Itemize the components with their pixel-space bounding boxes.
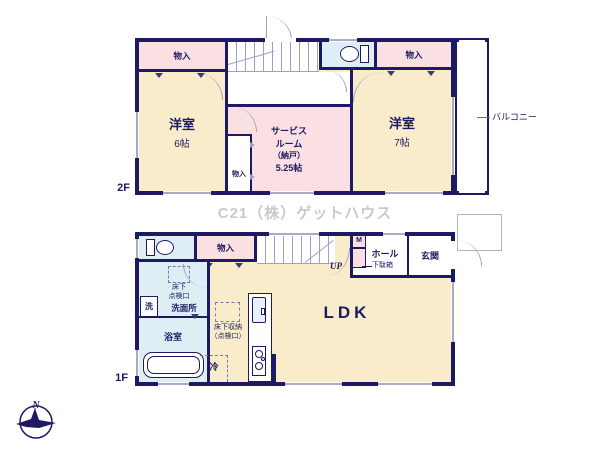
- balcony-corner: [485, 38, 489, 42]
- floor1-closet-label: 物入: [217, 242, 234, 254]
- fridge-label: 冷: [200, 362, 228, 373]
- toilet-tank-icon: [360, 45, 369, 63]
- window: [163, 191, 211, 195]
- floor2-closet-left: 物入: [139, 42, 228, 72]
- bathtub-inner: [147, 356, 200, 374]
- floor2-bedroom-west-size: 6帖: [174, 135, 190, 150]
- balcony-corner: [485, 191, 489, 195]
- window: [383, 232, 405, 236]
- window: [135, 112, 139, 158]
- window: [135, 239, 139, 258]
- underfloor-storage-line2: （点検口）: [207, 333, 249, 342]
- ldk-label: LDK: [305, 302, 389, 323]
- burner-icon: [255, 362, 263, 370]
- floor1-stairs: [257, 236, 335, 264]
- window: [269, 232, 319, 236]
- floor2-closet-small-label: 物入: [232, 169, 246, 179]
- window: [285, 382, 342, 386]
- floor2-bedroom-east-size: 7帖: [394, 134, 410, 149]
- faucet-icon: [261, 308, 265, 315]
- floor1-plan: 物入 UP M ホール 下駄箱 玄関 床下 点検口: [135, 232, 455, 386]
- floor2-closet-right: 物入: [377, 42, 451, 70]
- sliding-door-mark: [235, 263, 243, 268]
- floor2-bedroom-west-name: 洋室: [169, 114, 195, 133]
- floorplan-canvas: C21（株）ゲットハウス 2F 物入 DN 物入 洋室 6帖: [0, 0, 600, 450]
- stair-top-door-arc: [266, 16, 292, 40]
- front-door-opening: [451, 241, 455, 269]
- window: [135, 350, 139, 376]
- folding-door-mark: [250, 174, 255, 180]
- underfloor-storage-outline: [215, 302, 240, 322]
- service-room-line1: サービス: [271, 124, 307, 137]
- burner-icon: [261, 357, 265, 361]
- underfloor-storage-label: 床下収納 （点検口）: [207, 324, 249, 342]
- shoe-cabinet-leader: [362, 266, 372, 267]
- balcony-corner: [455, 38, 459, 42]
- toilet-bowl-icon: [156, 240, 174, 255]
- meter-box-divider: [353, 247, 365, 249]
- window: [158, 382, 189, 386]
- underfloor-storage-line1: 床下収納: [207, 324, 249, 333]
- floor2-label: 2F: [102, 182, 130, 196]
- window: [378, 382, 432, 386]
- bathtub-icon: [143, 352, 204, 378]
- window: [385, 191, 443, 195]
- kitchen-wall-stub: [272, 354, 276, 382]
- folding-door-mark: [250, 142, 255, 148]
- balcony-leader-line: [477, 117, 490, 118]
- service-room-line2: ルーム: [276, 137, 303, 150]
- entrance-label: 玄関: [421, 249, 439, 262]
- bathroom-label: 浴室: [144, 332, 202, 343]
- floor1-closet: 物入: [197, 236, 257, 262]
- floor1-toilet-room: [139, 236, 197, 262]
- washer-label: 洗: [140, 302, 158, 312]
- toilet-tank-icon: [146, 239, 155, 256]
- compass-icon: N: [12, 395, 60, 443]
- floor1-label: 1F: [100, 372, 128, 386]
- stair-top-door-opening: [265, 38, 296, 42]
- floor2-closet-small: 物入: [228, 134, 252, 191]
- floor-hatch-label: 床下 点検口: [163, 284, 195, 302]
- floor2-bedroom-east-name: 洋室: [389, 113, 415, 132]
- balcony-label: バルコニー: [492, 112, 537, 123]
- floor2-stairs: [228, 42, 319, 72]
- balcony-corner: [455, 191, 459, 195]
- shoe-cabinet-label: 下駄箱: [372, 262, 393, 271]
- window: [451, 282, 455, 342]
- meter-box-label: M: [353, 237, 365, 246]
- hall-label: ホール: [365, 249, 405, 260]
- floor2-closet-right-label: 物入: [405, 49, 422, 61]
- folding-door-mark: [191, 314, 199, 319]
- floor2-toilet-room: [319, 42, 377, 70]
- washroom-label: 洗面所: [159, 303, 209, 314]
- service-room-line3: （納戸）: [273, 150, 305, 161]
- kitchen-counter: [248, 293, 272, 382]
- stair-direction-line: [228, 51, 274, 65]
- floor-hatch-line1: 床下: [163, 284, 195, 293]
- compass-north-label: N: [31, 400, 40, 411]
- floor-hatch-line2: 点検口: [163, 293, 195, 302]
- window: [329, 38, 357, 42]
- floor2-plan: 物入 DN 物入 洋室 6帖 サービス ルーム （納戸）: [135, 38, 455, 195]
- floor2-closet-left-label: 物入: [173, 50, 190, 62]
- floor1-entrance: 玄関: [407, 236, 451, 278]
- stove-icon: [252, 346, 266, 376]
- toilet-bowl-icon: [340, 46, 359, 62]
- watermark: C21（株）ゲットハウス: [190, 205, 420, 224]
- window: [270, 191, 314, 195]
- service-room-line4: 5.25帖: [276, 161, 303, 174]
